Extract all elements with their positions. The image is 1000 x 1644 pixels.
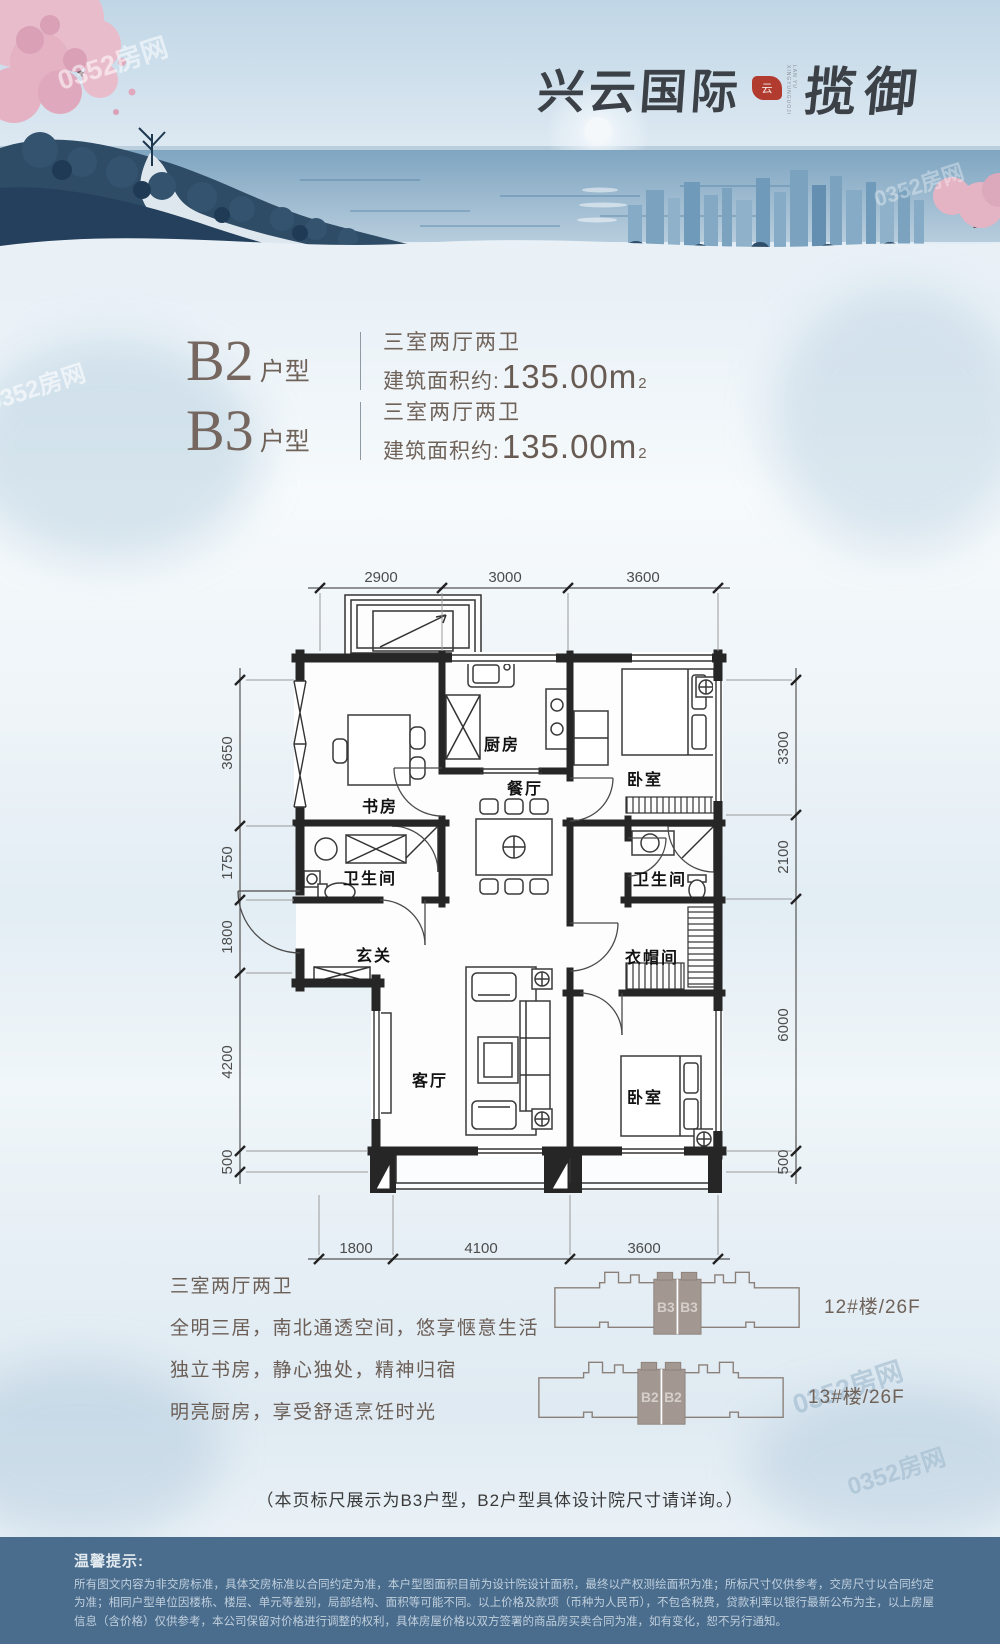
dim-right-3: 6000 — [775, 1008, 792, 1041]
unit-area-value: 135.00m — [502, 358, 637, 396]
unit-area-sup: 2 — [638, 375, 647, 392]
dim-top-1: 2900 — [364, 569, 397, 586]
unit-row-b3: B3 户型 三室两厅两卫 建筑面积约: 135.00m 2 — [186, 396, 648, 466]
mist-blob — [770, 290, 1000, 550]
room-label-dining: 餐厅 — [506, 779, 543, 798]
note-line: （本页标尺展示为B3户型，B2户型具体设计院尺寸请详询。） — [0, 1486, 1000, 1511]
building-unit-label: B2 — [664, 1390, 682, 1405]
selling-point-line: 独立书房，静心独处，精神归宿 — [170, 1350, 539, 1392]
building-unit-label: B3 — [657, 1300, 675, 1315]
room-label-study: 书房 — [362, 797, 398, 816]
divider — [360, 332, 361, 390]
room-label-cloakroom: 衣帽间 — [625, 948, 679, 967]
dim-bottom-3: 3600 — [627, 1240, 660, 1257]
room-label-kitchen: 厨房 — [484, 735, 520, 754]
selling-point-line: 全明三居，南北通透空间，悠享惬意生活 — [170, 1308, 539, 1350]
unit-area: 建筑面积约: 135.00m 2 — [383, 358, 648, 396]
selling-point-line: 明亮厨房，享受舒适烹饪时光 — [170, 1392, 539, 1434]
unit-area-value: 135.00m — [502, 428, 637, 466]
dim-left-3: 1800 — [219, 920, 236, 953]
unit-info: 三室两厅两卫 建筑面积约: 135.00m 2 — [383, 396, 648, 466]
unit-area: 建筑面积约: 135.00m 2 — [383, 428, 648, 466]
dim-right-4: 500 — [775, 1149, 792, 1174]
footer-title: 温馨提示: — [74, 1550, 934, 1571]
unit-code: B2 户型 — [186, 332, 354, 390]
dim-bottom-1: 1800 — [339, 1240, 372, 1257]
floor-plan: 2900 3000 3600 3650 1750 1800 4200 500 3… — [180, 543, 810, 1268]
footer-text: 所有图文内容为非交房标准，具体交房标准以合同约定为准，本户型图面积目前为设计院设… — [74, 1576, 934, 1631]
room-label-entry: 玄关 — [356, 946, 392, 965]
unit-layout: 三室两厅两卫 — [383, 396, 648, 426]
building-diagram-12: B3 B3 12#楼/26F — [548, 1262, 921, 1348]
brand-logo: 兴云国际 云 LAN YU XINGYUNGUOJI 揽御 — [538, 50, 925, 125]
unit-area-label: 建筑面积约: — [383, 365, 500, 395]
unit-area-label: 建筑面积约: — [383, 435, 500, 465]
footer-disclaimer: 温馨提示: 所有图文内容为非交房标准，具体交房标准以合同约定为准，本户型图面积目… — [0, 1537, 1000, 1644]
room-label-living: 客厅 — [412, 1071, 448, 1090]
dim-top-3: 3600 — [626, 569, 659, 586]
dim-top-2: 3000 — [488, 569, 521, 586]
seal-icon: 云 — [752, 76, 782, 100]
dim-left-4: 4200 — [219, 1045, 236, 1078]
dim-left-5: 500 — [219, 1149, 236, 1174]
unit-code-text: B2 — [186, 332, 254, 390]
flyer-page: 兴云国际 云 LAN YU XINGYUNGUOJI 揽御 0352房网 035… — [0, 0, 1000, 1644]
dim-right-2: 2100 — [775, 840, 792, 873]
dim-left-1: 3650 — [219, 736, 236, 769]
unit-layout: 三室两厅两卫 — [383, 326, 648, 356]
room-label-bath-right: 卫生间 — [633, 870, 687, 889]
brand-logo-main: 兴云国际 — [536, 53, 745, 122]
unit-row-b2: B2 户型 三室两厅两卫 建筑面积约: 135.00m 2 — [186, 326, 648, 396]
divider — [360, 402, 361, 460]
room-label-bedroom-top: 卧室 — [627, 770, 663, 789]
header-landscape-art — [0, 0, 1000, 300]
selling-points: 三室两厅两卫 全明三居，南北通透空间，悠享惬意生活 独立书房，静心独处，精神归宿… — [170, 1266, 539, 1434]
building-label: 12#楼/26F — [824, 1292, 921, 1319]
building-unit-label: B3 — [680, 1300, 698, 1315]
building-footprint: B3 B3 — [548, 1262, 806, 1348]
room-label-bedroom-bottom: 卧室 — [627, 1088, 663, 1107]
building-footprint: B2 B2 — [532, 1352, 790, 1438]
brand-logo-caption: LAN YU XINGYUNGUOJI — [785, 65, 797, 111]
brand-logo-sub: 揽御 — [801, 50, 929, 125]
building-diagram-13: B2 B2 13#楼/26F — [532, 1352, 905, 1438]
unit-code-suffix: 户型 — [260, 422, 310, 458]
building-label: 13#楼/26F — [808, 1382, 905, 1409]
unit-title-block: B2 户型 三室两厅两卫 建筑面积约: 135.00m 2 B3 户型 三室两厅… — [186, 326, 648, 466]
unit-info: 三室两厅两卫 建筑面积约: 135.00m 2 — [383, 326, 648, 396]
dim-left-2: 1750 — [219, 846, 236, 879]
mist-wave — [0, 238, 1000, 300]
building-unit-label: B2 — [641, 1390, 659, 1405]
unit-area-sup: 2 — [638, 445, 647, 462]
dim-right-1: 3300 — [775, 731, 792, 764]
selling-points-title: 三室两厅两卫 — [170, 1266, 539, 1308]
unit-code-suffix: 户型 — [260, 352, 310, 388]
unit-code: B3 户型 — [186, 402, 354, 460]
room-label-bath-left: 卫生间 — [343, 869, 397, 888]
watermark: 0352房网 — [0, 353, 89, 418]
dim-bottom-2: 4100 — [464, 1240, 497, 1257]
unit-code-text: B3 — [186, 402, 254, 460]
